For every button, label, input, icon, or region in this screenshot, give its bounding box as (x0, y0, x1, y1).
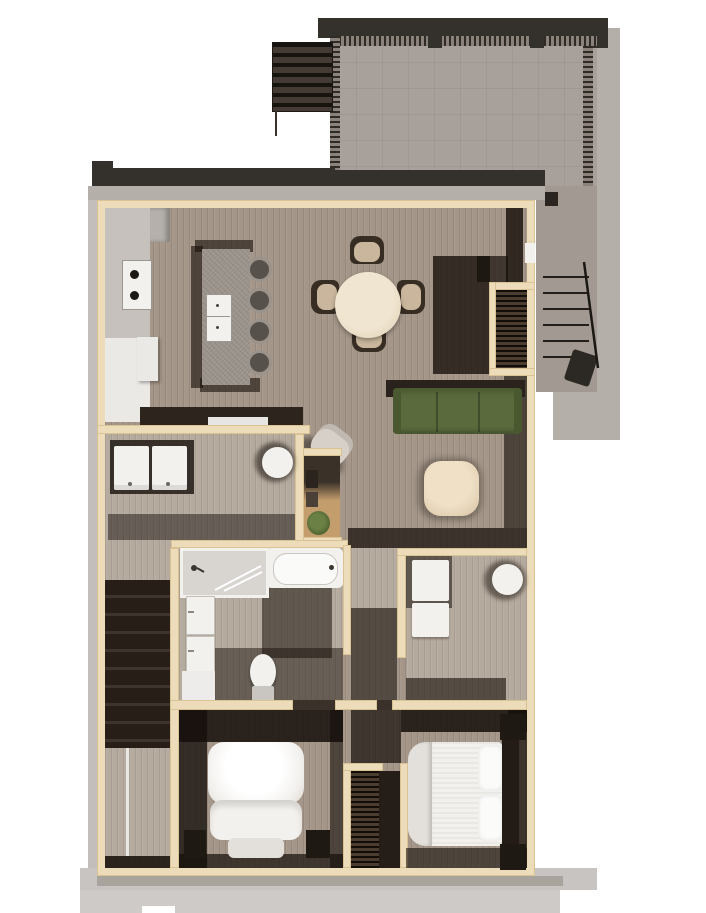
bar-stool (247, 257, 272, 282)
vanity-sink (186, 636, 215, 672)
utility-wall-top (397, 548, 527, 556)
stair-handrail (126, 748, 129, 856)
stacked-laundry-lower (412, 603, 449, 637)
stacked-laundry-upper (412, 560, 449, 601)
tub-faucet (329, 565, 334, 570)
bedroom2-door-gap (377, 700, 392, 710)
fascia-left (88, 200, 97, 876)
floor-plan-render (0, 0, 706, 913)
sofa-arm (514, 388, 522, 434)
deck-fascia-right (597, 28, 620, 392)
burner (130, 291, 139, 300)
laundry-wall-top (97, 425, 310, 434)
stairbox-wall-left (489, 282, 496, 376)
dining-chair-seat (317, 284, 337, 310)
bed2-headboard (502, 738, 519, 850)
bar-stool (247, 319, 272, 344)
roof-deck-slab (330, 36, 597, 186)
bed2-pillow (478, 745, 503, 791)
bed1-right-shadow (330, 710, 343, 868)
burner (130, 270, 139, 279)
sink-drain (216, 304, 219, 307)
niche-frame (306, 470, 318, 488)
hall-pocket-shadow (351, 608, 397, 702)
island-sink (206, 294, 232, 342)
closet-floor-dark (379, 771, 400, 868)
linen-cabinet (182, 671, 215, 703)
bathtub-basin (273, 553, 338, 585)
nightstand (184, 830, 206, 858)
vanity-faucet (188, 611, 194, 613)
nightstand (500, 844, 526, 870)
counter-sink-block (137, 337, 158, 381)
bedroom1-door-gap (293, 700, 335, 710)
bath-wall-right (343, 545, 351, 655)
shower (180, 548, 269, 598)
stairwell-bottom-shadow (105, 856, 170, 868)
interior-stair (496, 290, 527, 368)
laundry-wall-right (295, 434, 304, 548)
deck-roof-band (318, 18, 608, 38)
entry-floor-shadow (506, 208, 523, 282)
vanity-faucet (188, 650, 194, 652)
closet-wall-top (343, 763, 383, 771)
vanity-sink (186, 596, 215, 635)
sofa-arm (393, 388, 401, 434)
sink-drain (216, 326, 219, 329)
coffee-table (424, 461, 479, 516)
wall-fixture (545, 192, 558, 206)
niche-frame (306, 492, 318, 507)
shower-head (191, 565, 197, 571)
living-bottom-shadow (348, 528, 527, 548)
bed1-sheet-tail (228, 838, 284, 858)
bath-shadow-h (210, 648, 343, 700)
washer-knob (128, 482, 132, 486)
dining-chair-seat (354, 242, 380, 262)
stairbox-wall-bottom (489, 368, 535, 376)
bed2-pillow (478, 795, 503, 841)
bed1-duvet (210, 800, 302, 840)
dining-table (335, 272, 401, 338)
dining-chair-seat (401, 284, 421, 310)
railing-post (530, 33, 544, 48)
utility-wall-left (397, 548, 406, 658)
sofa-cushion-line (478, 392, 480, 432)
utility-shadow-bottom (406, 678, 506, 702)
louver-canopy (272, 42, 333, 112)
water-heater (492, 564, 523, 595)
utility-basin (262, 447, 293, 478)
bed1-pillows (208, 742, 304, 804)
closet-wall-left (343, 763, 351, 868)
fascia-top (88, 186, 545, 200)
bedroom-wall (335, 700, 377, 710)
plant (307, 511, 330, 535)
nightstand (306, 830, 330, 858)
bedroom-wall (392, 700, 527, 710)
stair-lower-flight (105, 748, 170, 856)
cooktop (122, 260, 152, 310)
entry-floor-shadow2 (477, 256, 508, 282)
ground-apron-inner (97, 876, 563, 886)
railing-post (428, 33, 442, 48)
apron-notch (142, 906, 175, 913)
sofa-cushion-line (436, 392, 438, 432)
bar-stool (247, 350, 272, 375)
dryer-knob (166, 482, 170, 486)
bed2-fold (408, 742, 432, 846)
laundry-floor-shadow (108, 514, 295, 540)
entry-door (525, 243, 535, 263)
nightstand (500, 714, 526, 740)
bar-stool (247, 288, 272, 313)
bedroom-wall (170, 700, 293, 710)
stair-lower-landing (553, 392, 620, 440)
roof-edge-bump (92, 161, 113, 186)
closet-entry-shadow (351, 710, 401, 763)
deck-railing-top (334, 36, 597, 46)
roof-edge-band (92, 168, 335, 186)
toilet (250, 654, 276, 690)
bath-shadow-v (262, 583, 332, 658)
island-sink-divider (206, 316, 230, 317)
roof-edge-band-right (335, 170, 545, 186)
downspout-line (275, 110, 277, 136)
stair-top-landing (105, 548, 170, 582)
hanging-clothes (351, 771, 379, 868)
sofa (393, 388, 522, 434)
stairs-treads (105, 580, 170, 748)
bath-wall-top (171, 540, 348, 548)
